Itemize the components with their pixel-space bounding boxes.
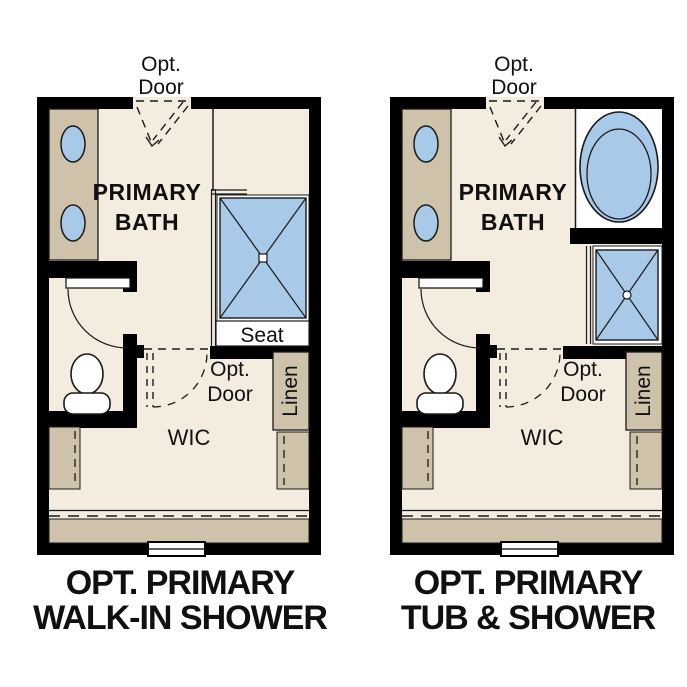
entry-door-label-line2: Door: [138, 76, 184, 99]
plan-title-line1: OPT. PRIMARY: [414, 564, 644, 602]
plan-tub-and-shower: Opt. Door PRIMARY BATH Opt. Door WIC Lin…: [390, 53, 674, 637]
shower-drain: [259, 254, 267, 262]
room-label-line2: BATH: [481, 209, 545, 235]
linen-label: Linen: [632, 365, 655, 416]
shower-drain: [623, 291, 631, 299]
floorplan-drawing: Opt. Door PRIMARY BATH Seat Opt. Door WI…: [0, 0, 687, 687]
closet-door-label-line2: Door: [560, 383, 606, 406]
closet-door-label-line1: Opt.: [563, 358, 603, 381]
seat-label: Seat: [240, 324, 283, 347]
plan-walk-in-shower: Opt. Door PRIMARY BATH Seat Opt. Door WI…: [33, 53, 327, 637]
room-label-line2: BATH: [115, 209, 179, 235]
floorplan-canvas: Opt. Door PRIMARY BATH Seat Opt. Door WI…: [0, 0, 687, 687]
plan-title-line1: OPT. PRIMARY: [66, 564, 296, 602]
tub-wall: [570, 228, 662, 244]
room-label-line1: PRIMARY: [93, 179, 202, 205]
wic-label: WIC: [168, 425, 211, 450]
plan-title-line2: TUB & SHOWER: [401, 599, 656, 637]
plan-title-line2: WALK-IN SHOWER: [33, 599, 327, 637]
entry-door-label-line2: Door: [491, 76, 537, 99]
entry-door-label-line1: Opt.: [141, 53, 181, 76]
closet-door-label-line1: Opt.: [210, 358, 250, 381]
linen-label: Linen: [279, 365, 302, 416]
closet-door-label-line2: Door: [207, 383, 253, 406]
room-label-line1: PRIMARY: [459, 179, 568, 205]
wic-label: WIC: [521, 425, 564, 450]
entry-door-label-line1: Opt.: [494, 53, 534, 76]
